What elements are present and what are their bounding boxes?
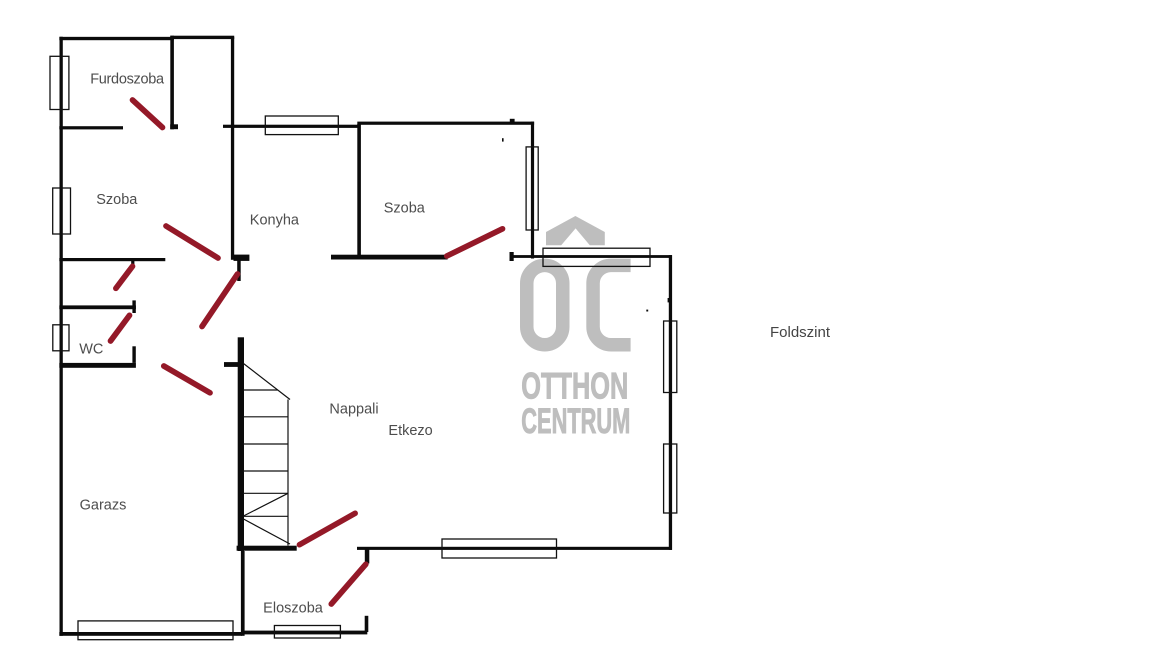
svg-text:OTTHON: OTTHON	[521, 364, 628, 406]
svg-text:Garazs: Garazs	[80, 498, 127, 514]
svg-text:Foldszint: Foldszint	[770, 324, 831, 341]
svg-text:Etkezo: Etkezo	[388, 423, 432, 439]
svg-text:Nappali: Nappali	[329, 402, 378, 418]
svg-text:CENTRUM: CENTRUM	[521, 402, 630, 441]
svg-text:Furdoszoba: Furdoszoba	[90, 72, 165, 88]
svg-text:Eloszoba: Eloszoba	[263, 601, 324, 617]
svg-text:Szoba: Szoba	[96, 192, 138, 208]
svg-text:WC: WC	[79, 342, 103, 358]
svg-text:Konyha: Konyha	[250, 213, 300, 229]
svg-text:Szoba: Szoba	[384, 201, 426, 217]
